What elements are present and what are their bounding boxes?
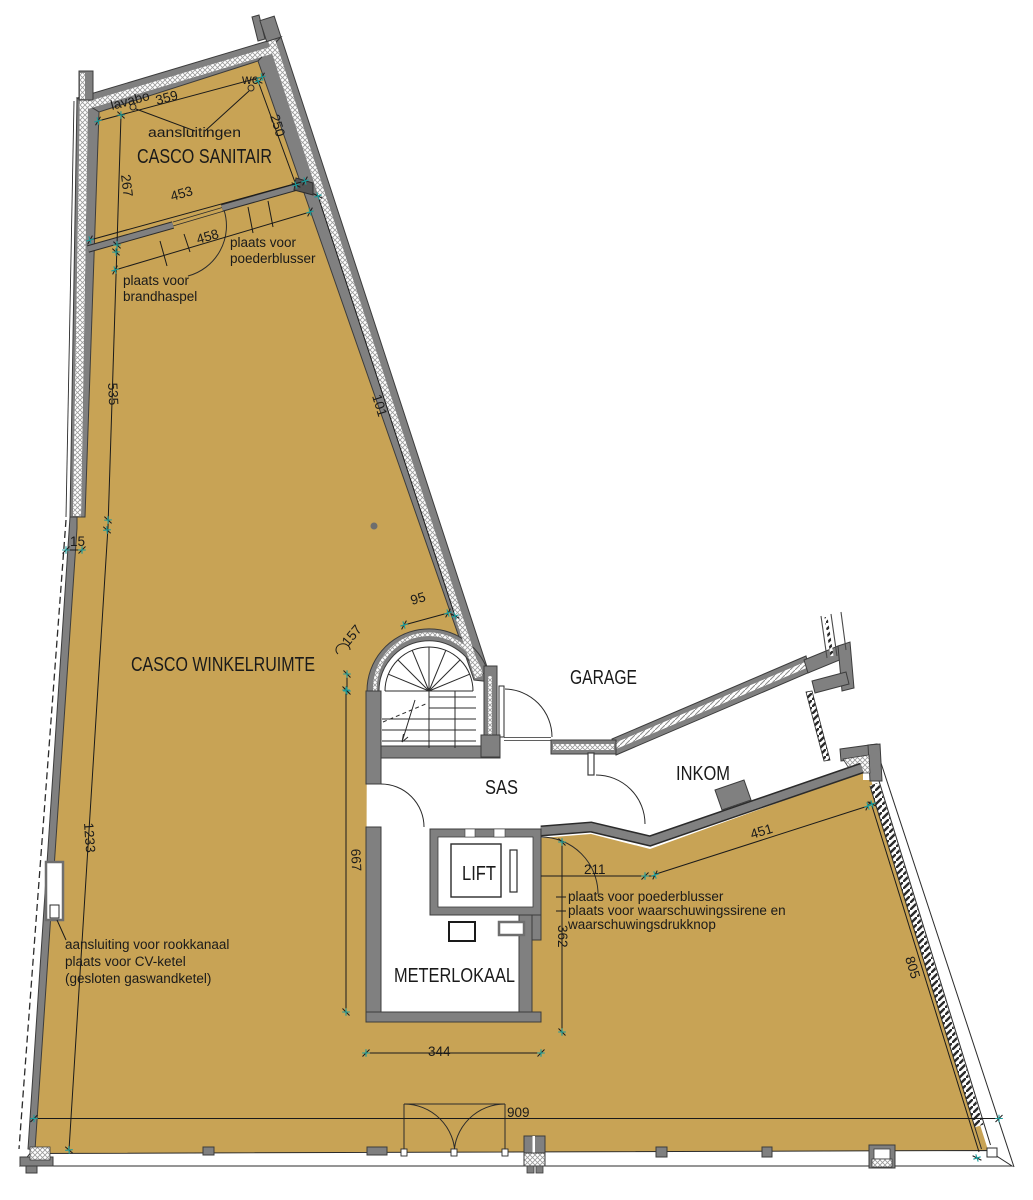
svg-text:1233: 1233 [81, 822, 98, 853]
svg-text:211: 211 [584, 862, 606, 877]
svg-text:waarschuwingsdrukknop: waarschuwingsdrukknop [567, 917, 716, 932]
svg-text:INKOM: INKOM [676, 763, 730, 785]
svg-text:535: 535 [105, 382, 121, 405]
svg-text:aansluiting voor rookkanaal: aansluiting voor rookkanaal [65, 937, 229, 952]
svg-text:362: 362 [555, 925, 570, 948]
svg-text:brandhaspel: brandhaspel [123, 289, 197, 304]
svg-text:plaats voor waarschuwingssiren: plaats voor waarschuwingssirene en [568, 903, 786, 918]
svg-text:METERLOKAAL: METERLOKAAL [394, 965, 515, 987]
svg-text:plaats voor CV-ketel: plaats voor CV-ketel [65, 954, 186, 969]
svg-text:344: 344 [428, 1044, 451, 1059]
svg-text:267: 267 [118, 174, 136, 198]
svg-text:(gesloten gaswandketel): (gesloten gaswandketel) [65, 971, 211, 986]
svg-text:GARAGE: GARAGE [570, 667, 637, 689]
svg-text:SAS: SAS [485, 777, 518, 799]
svg-text:LIFT: LIFT [462, 863, 496, 885]
svg-text:CASCO SANITAIR: CASCO SANITAIR [137, 146, 272, 168]
svg-text:667: 667 [348, 848, 364, 871]
svg-text:plaats voor: plaats voor [123, 273, 190, 288]
svg-text:poederblusser: poederblusser [230, 251, 316, 266]
svg-text:aansluitingen: aansluitingen [148, 125, 241, 140]
svg-text:909: 909 [507, 1105, 530, 1120]
svg-text:15: 15 [70, 534, 85, 549]
svg-text:CASCO WINKELRUIMTE: CASCO WINKELRUIMTE [131, 654, 315, 676]
svg-text:plaats voor poederblusser: plaats voor poederblusser [568, 889, 724, 904]
svg-text:plaats voor: plaats voor [230, 235, 297, 250]
